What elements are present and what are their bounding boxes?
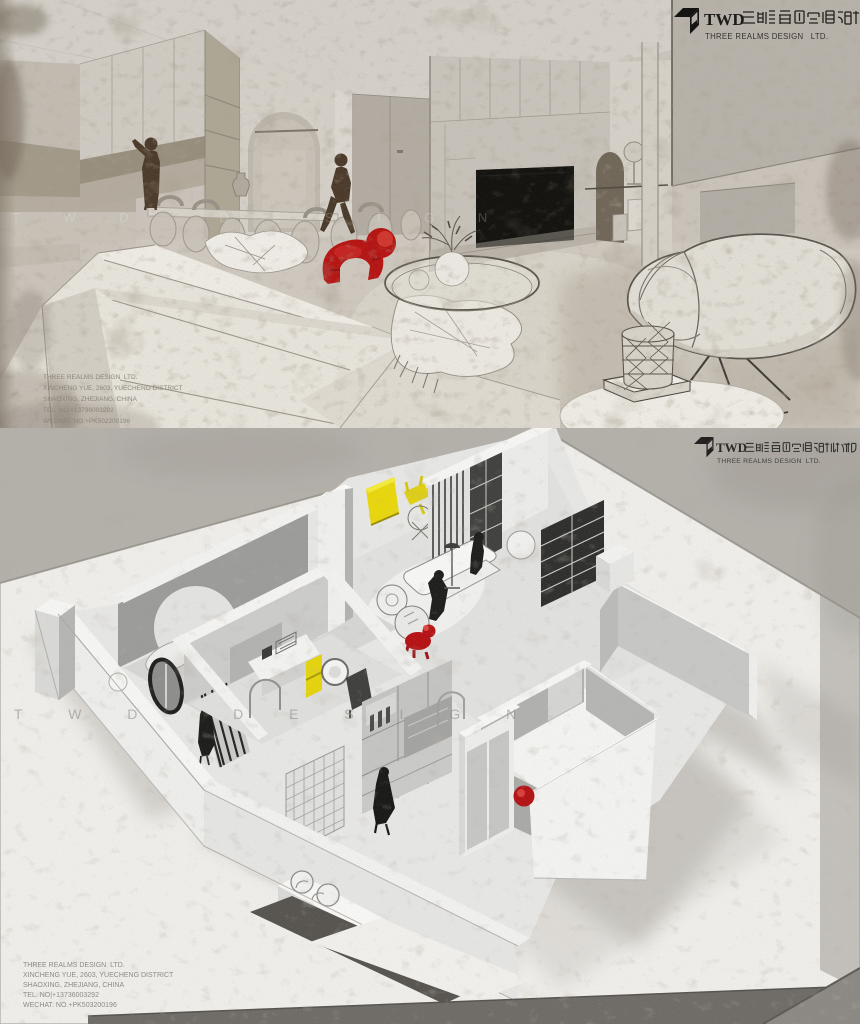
svg-text:TWD: TWD xyxy=(704,10,745,29)
svg-text:THREE REALMS DESIGN LTD.: THREE REALMS DESIGN LTD. xyxy=(717,458,821,465)
svg-text:T W D D E S I G N: T W D D E S I G N xyxy=(12,210,507,225)
svg-text:TEL. NO|+13736003292: TEL. NO|+13736003292 xyxy=(23,992,99,999)
svg-text:SHAOXING, ZHEJIANG, CHINA: SHAOXING, ZHEJIANG, CHINA xyxy=(43,396,138,403)
svg-text:XINCHENG YUE, 2603, YUECHENG D: XINCHENG YUE, 2603, YUECHENG DISTRICT xyxy=(23,972,174,979)
svg-text:THREE REALMS DESIGN LTD.: THREE REALMS DESIGN LTD. xyxy=(23,962,125,969)
svg-text:TWD: TWD xyxy=(716,440,747,455)
svg-text:XINCHENG YUE, 2603, YUECHENG D: XINCHENG YUE, 2603, YUECHENG DISTRICT xyxy=(43,385,183,392)
svg-text:SHAOXING, ZHEJIANG, CHINA: SHAOXING, ZHEJIANG, CHINA xyxy=(23,982,124,989)
svg-text:THREE REALMS DESIGN LTD.: THREE REALMS DESIGN LTD. xyxy=(43,374,138,381)
svg-text:WECHAT. NO:+PK502200196: WECHAT. NO:+PK502200196 xyxy=(43,418,131,425)
svg-text:T W D D E S I G N: T W D D E S I G N xyxy=(14,706,537,722)
svg-text:THREE REALMS DESIGN LTD.: THREE REALMS DESIGN LTD. xyxy=(705,32,828,41)
svg-text:TEL. NO:+13736003292: TEL. NO:+13736003292 xyxy=(43,407,114,414)
svg-text:WECHAT. NO.+PK503200196: WECHAT. NO.+PK503200196 xyxy=(23,1002,117,1009)
